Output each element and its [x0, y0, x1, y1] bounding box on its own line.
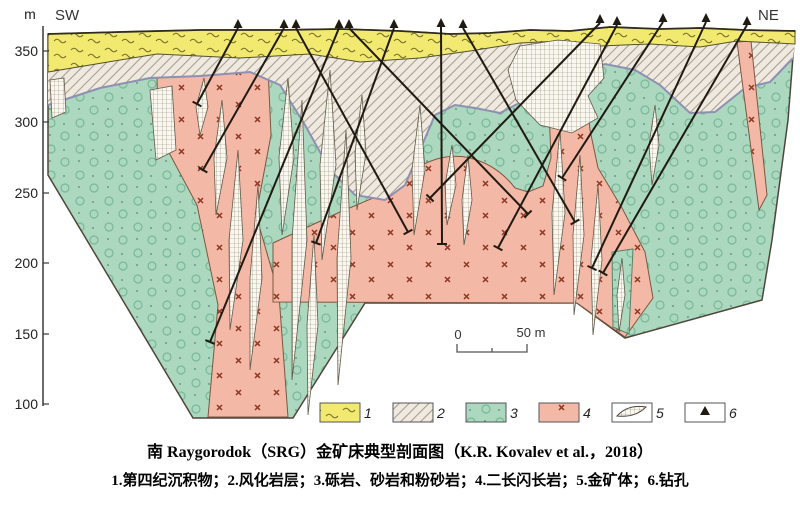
scale-start-label: 0	[454, 327, 461, 342]
drill-collar-icon	[459, 19, 468, 28]
legend-swatch-sediments	[466, 403, 506, 422]
legend-item-monzodiorite: 4	[539, 403, 591, 422]
drill-collar-icon	[390, 19, 399, 28]
legend-item-sediments: 3	[466, 403, 518, 422]
drill-collar-icon	[345, 19, 354, 28]
elevation-axis: m 350 300 250 200 150 100	[15, 6, 49, 412]
drill-collar-icon	[234, 19, 243, 28]
legend-num-1: 1	[364, 405, 372, 421]
drill-collar-icon	[292, 19, 301, 28]
scale-bar-line	[457, 344, 527, 352]
drill-collar-icon	[702, 13, 711, 22]
drill-collar-icon	[437, 18, 446, 27]
legend-num-2: 2	[436, 405, 445, 421]
axis-tick-300: 300	[15, 114, 39, 130]
axis-tick-150: 150	[15, 326, 39, 342]
figure-legend-text: 1.第四纪沉积物；2.风化岩层；3.砾岩、砂岩和粉砂岩；4.二长闪长岩；5.金矿…	[0, 469, 800, 490]
legend-swatch-weathered	[393, 403, 433, 422]
legend-item-quaternary: 1	[320, 403, 372, 422]
drill-collar-icon	[743, 16, 752, 25]
legend-item-orebody: 5	[612, 403, 664, 422]
scale-bar: 0 50 m	[454, 325, 545, 352]
sw-label: SW	[55, 7, 80, 24]
legend-swatch-monzodiorite	[539, 403, 579, 422]
axis-tick-250: 250	[15, 185, 39, 201]
scale-end-label: 50 m	[517, 325, 546, 340]
legend: 1 2 3 4 5 6	[320, 403, 737, 422]
axis-tick-350: 350	[15, 43, 39, 59]
axis-unit-label: m	[24, 6, 36, 22]
axis-tick-100: 100	[15, 396, 39, 412]
section-body	[48, 13, 795, 418]
drill-collar-icon	[596, 14, 605, 23]
ne-label: NE	[758, 7, 779, 24]
legend-swatch-quaternary	[320, 403, 360, 422]
figure-title: 南 Raygorodok（SRG）金矿床典型剖面图（K.R. Kovalev e…	[0, 438, 800, 462]
drill-collar-icon	[280, 19, 289, 28]
legend-num-4: 4	[583, 405, 591, 421]
axis-tick-200: 200	[15, 255, 39, 271]
drill-collar-icon	[335, 19, 344, 28]
legend-num-5: 5	[656, 405, 664, 421]
cross-section-figure: m 350 300 250 200 150 100 SW NE 0 50 m 1…	[0, 0, 800, 432]
legend-item-weathered: 2	[393, 403, 445, 422]
legend-item-drillhole: 6	[685, 403, 737, 422]
legend-num-6: 6	[729, 405, 737, 421]
drill-collar-icon	[659, 13, 668, 22]
drill-collar-icon	[613, 16, 622, 25]
legend-num-3: 3	[510, 405, 518, 421]
orebody-zone	[50, 78, 66, 118]
